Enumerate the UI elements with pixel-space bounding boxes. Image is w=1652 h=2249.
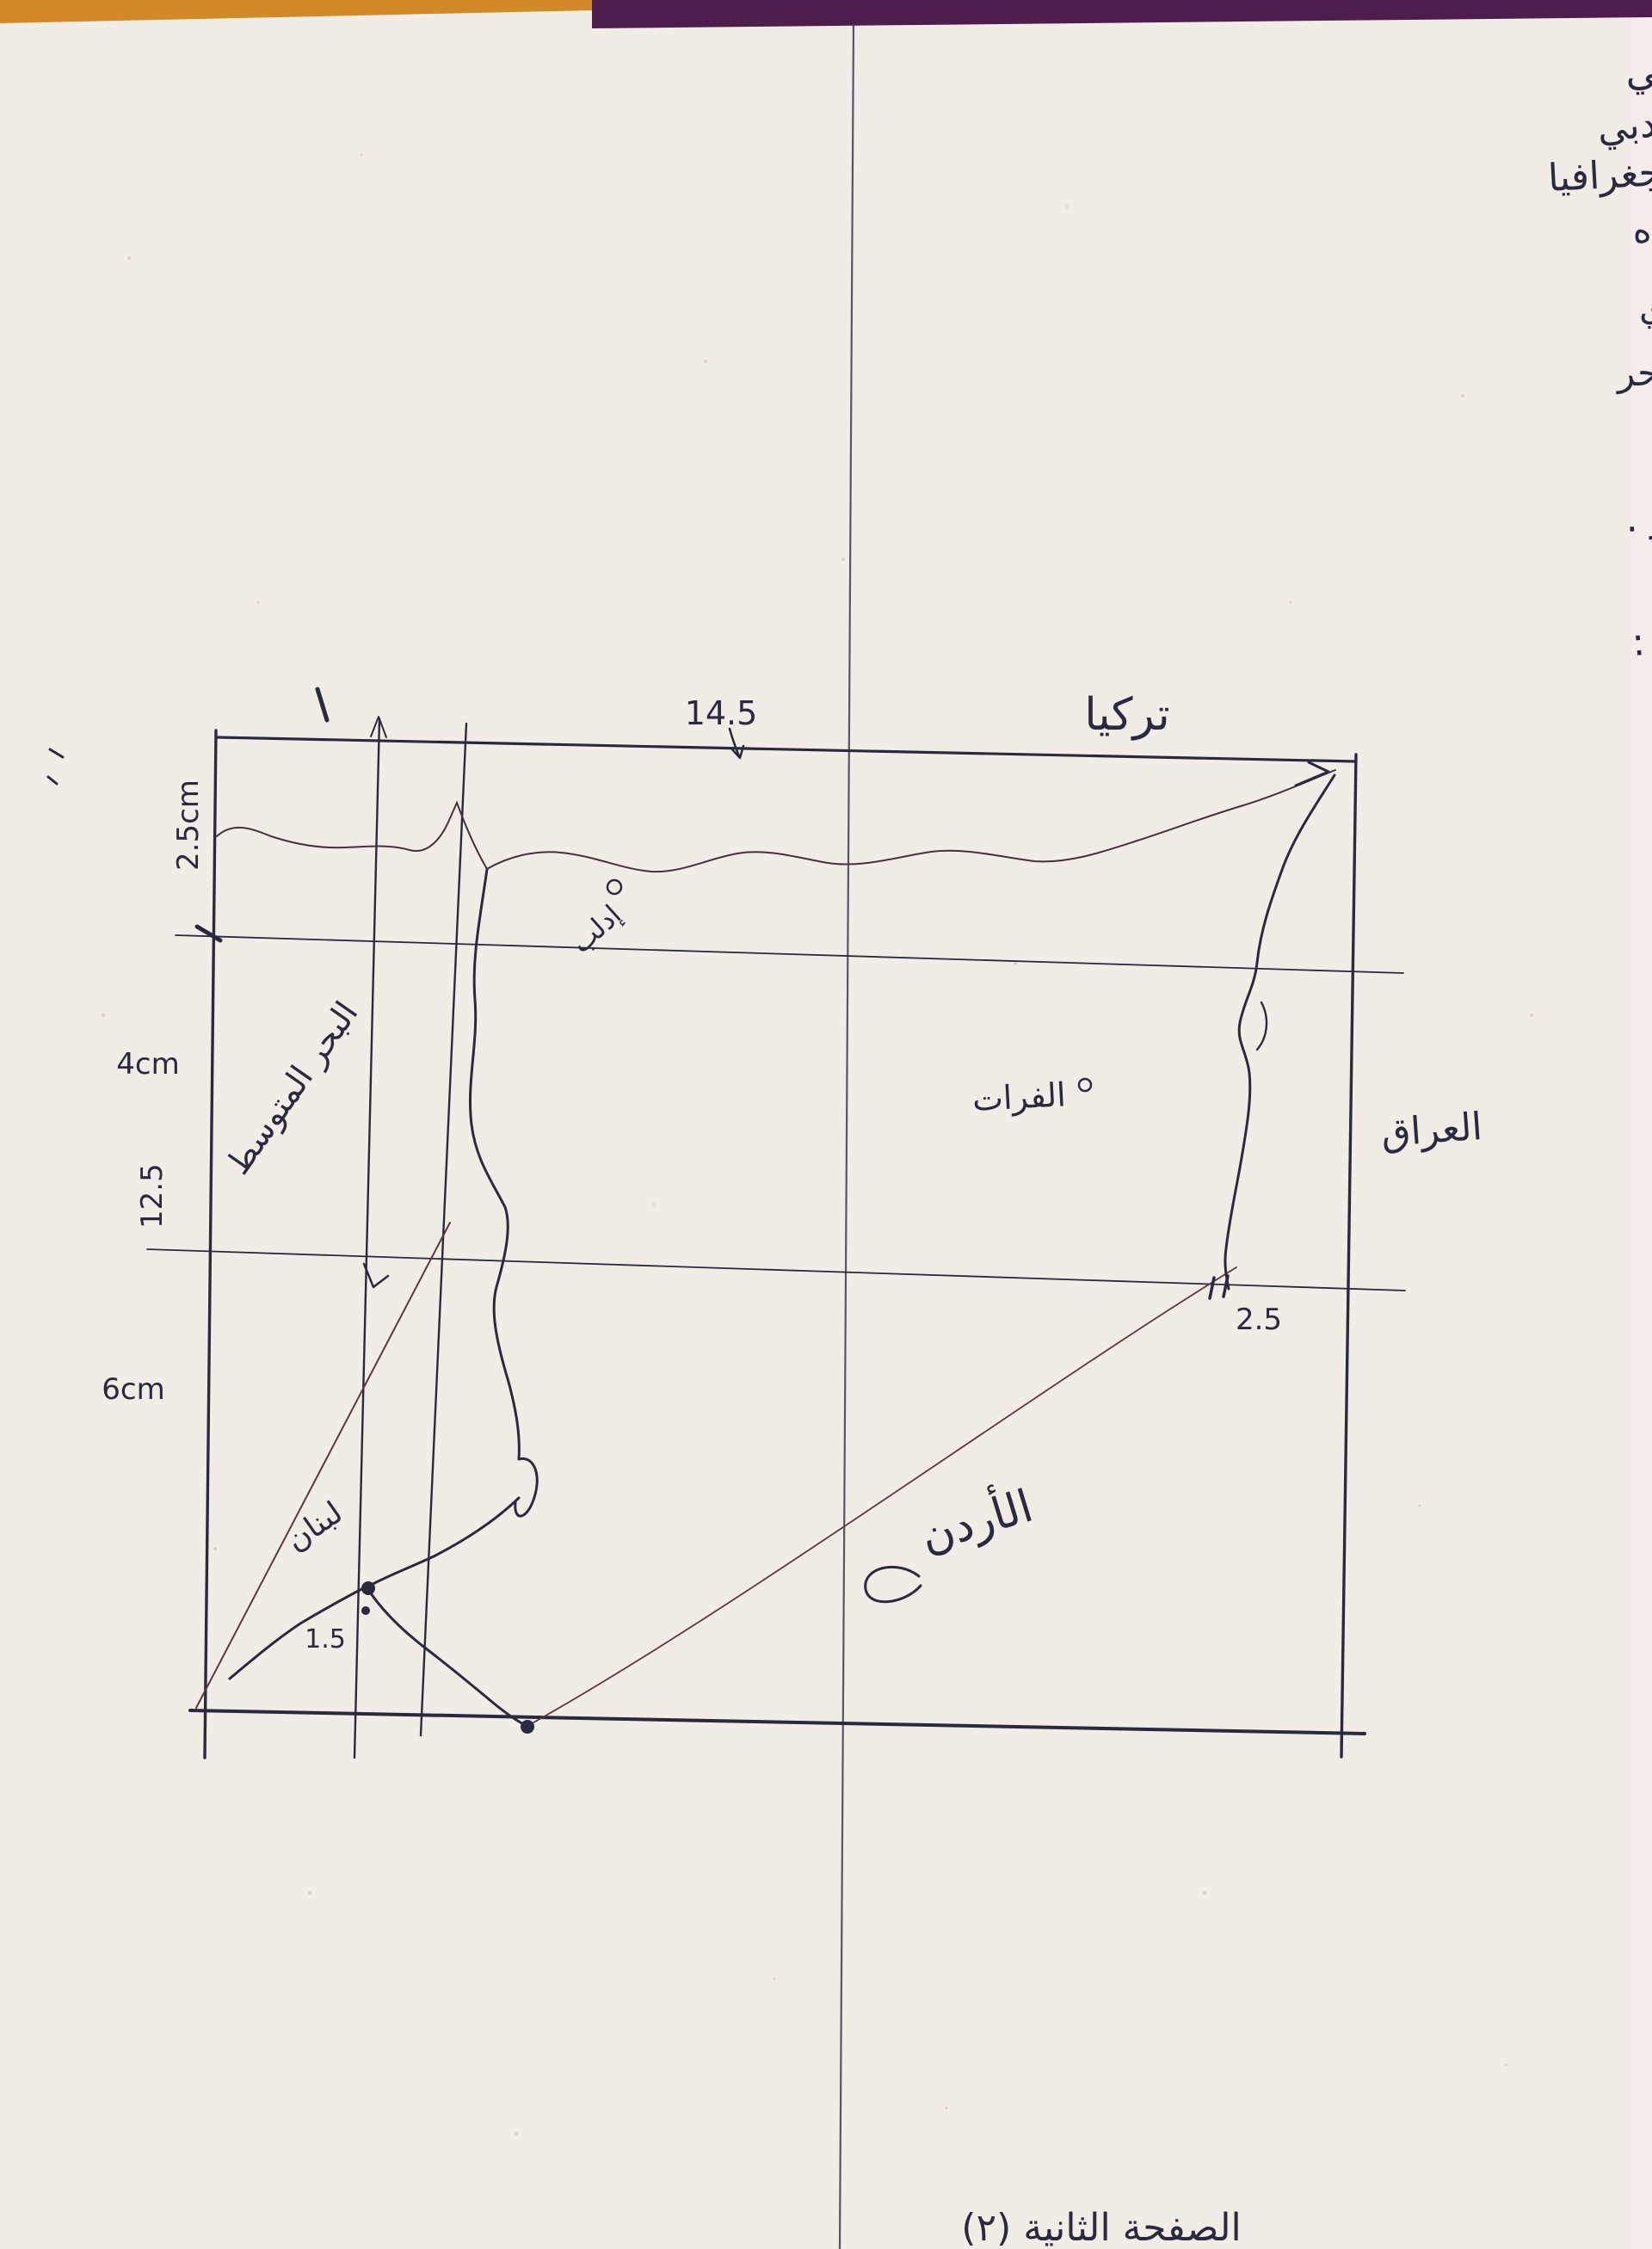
euphrates-label: الفرات: [971, 1075, 1067, 1119]
page-number-label: الصفحة الثانية (٢): [961, 2206, 1241, 2249]
measure-left-bottom: 6cm: [102, 1372, 164, 1407]
measure-left-mid2: 12.5: [135, 1163, 170, 1229]
answer-item-2: ٢) تحلية مياه البحر: [1616, 352, 1652, 394]
measure-left-top: 2.5cm: [171, 779, 206, 871]
turkey-label: تركيا: [1084, 689, 1169, 741]
measure-top-width: 14.5: [685, 694, 758, 732]
measure-east-segment: 2.5: [1236, 1303, 1282, 1337]
ink-blot-south: [521, 1720, 534, 1734]
subject-line: جغرافيا: [1547, 151, 1652, 200]
ink-blot-lebanon-2: [361, 1606, 370, 1615]
measure-southwest-segment: 1.5: [305, 1624, 346, 1654]
paper-right-edge: [1631, 0, 1652, 2249]
ink-blot-lebanon: [361, 1581, 375, 1595]
scanned-page: رند حسين الأوراخلي ثالث ثانوي أدبي جغراف…: [0, 0, 1652, 2249]
measure-left-mid: 4cm: [116, 1047, 179, 1081]
iraq-label: العراق: [1380, 1105, 1484, 1155]
